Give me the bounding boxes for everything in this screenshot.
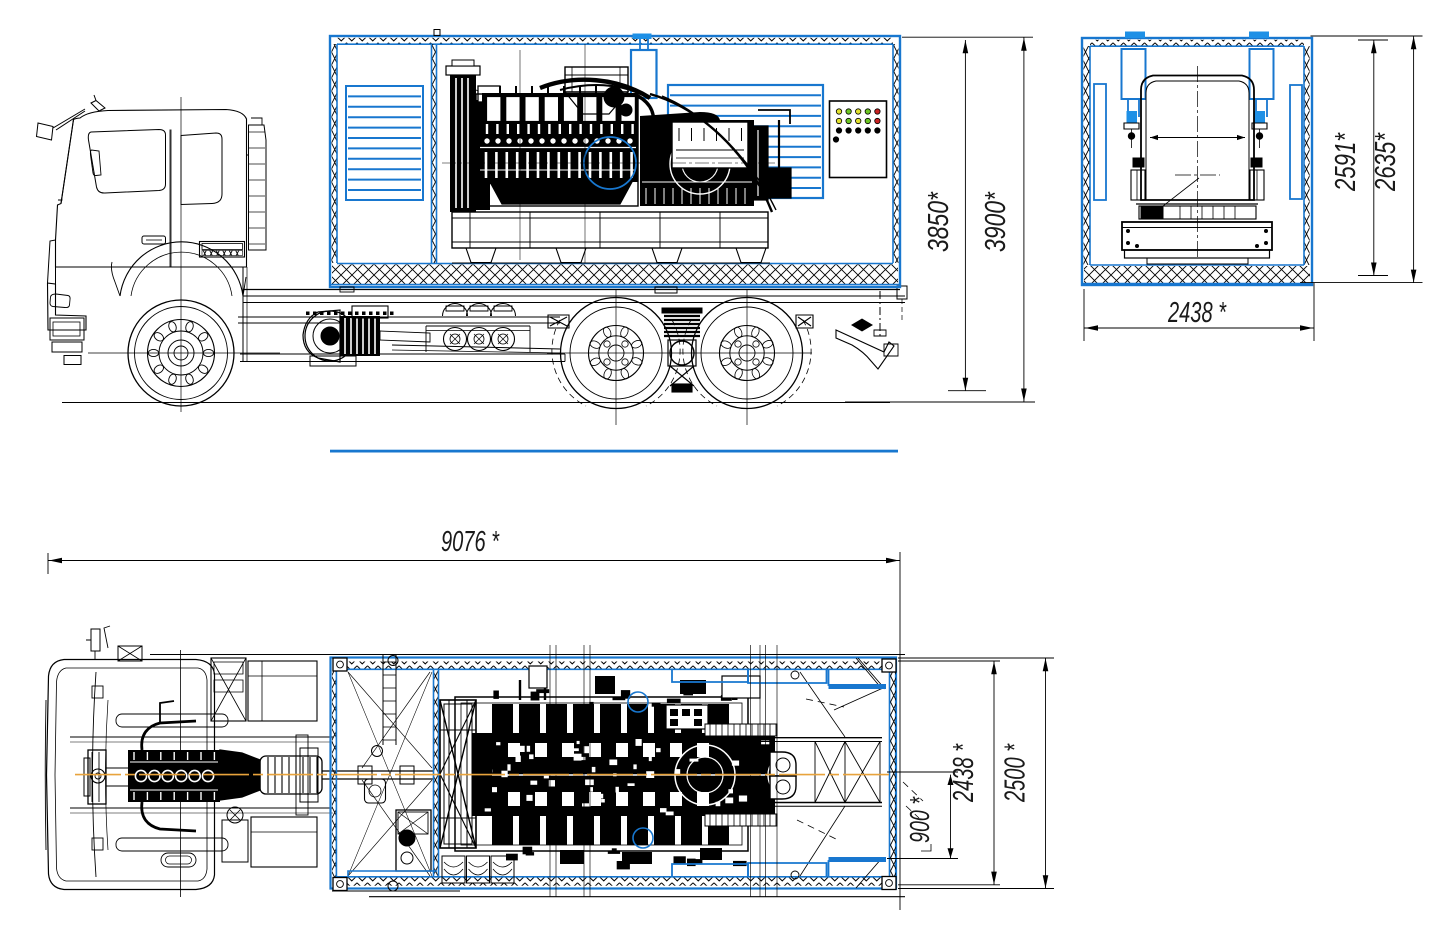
svg-text:3900*: 3900* (980, 191, 1012, 252)
svg-text:2438 *: 2438 * (1167, 297, 1227, 329)
svg-text:900 *: 900 * (904, 796, 935, 843)
svg-text:2635*: 2635* (1370, 132, 1402, 192)
svg-text:9076 *: 9076 * (441, 526, 500, 558)
svg-text:3850*: 3850* (923, 191, 955, 252)
svg-text:2438 *: 2438 * (948, 743, 980, 803)
svg-text:2500 *: 2500 * (1000, 743, 1032, 803)
svg-text:2591*: 2591* (1330, 132, 1362, 192)
